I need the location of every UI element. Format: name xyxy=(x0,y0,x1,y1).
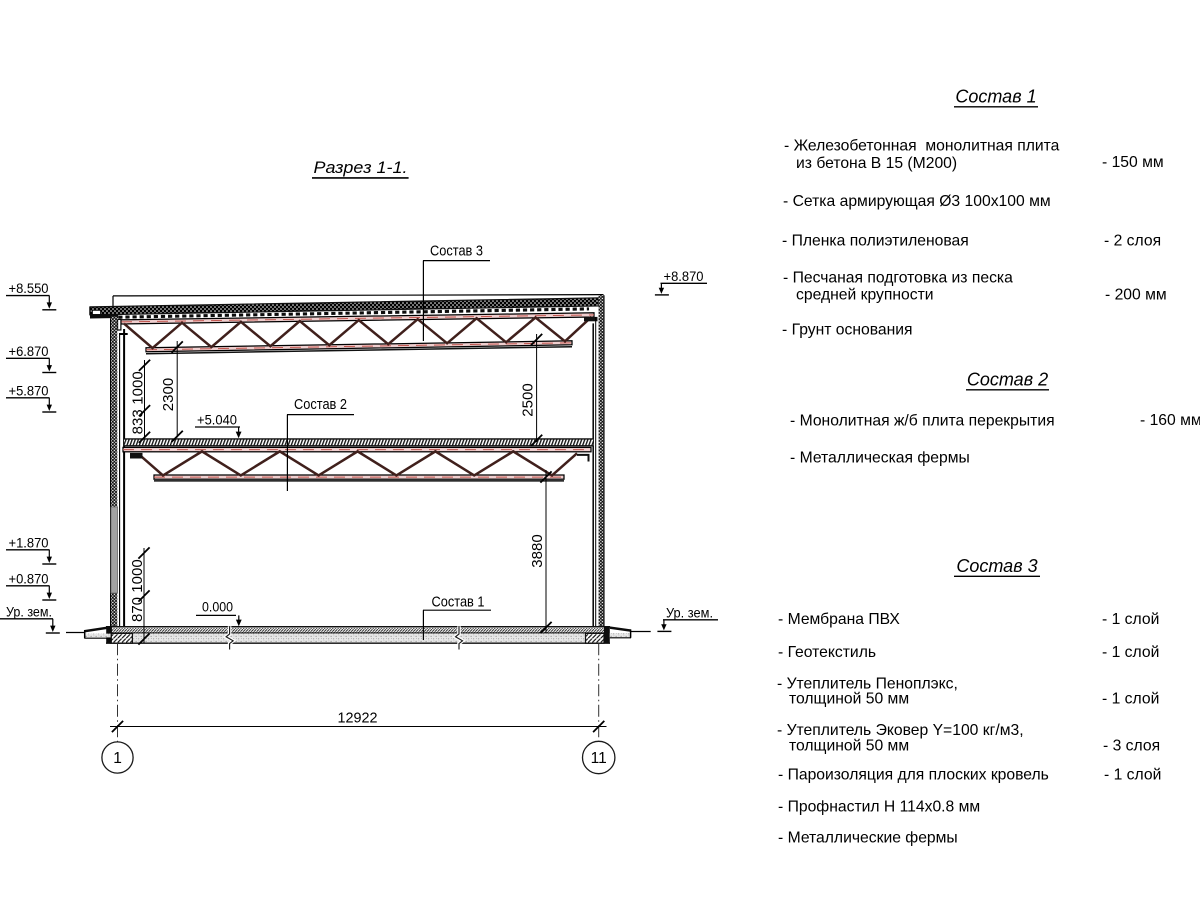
svg-text:870: 870 xyxy=(129,597,146,622)
svg-text:+6.870: +6.870 xyxy=(9,344,49,359)
svg-text:Состав 3: Состав 3 xyxy=(956,556,1037,576)
svg-text:833: 833 xyxy=(130,409,147,434)
svg-text:- Утеплитель Эковер Y=100 кг/м: - Утеплитель Эковер Y=100 кг/м3, xyxy=(777,722,1024,739)
svg-text:- 1 слой: - 1 слой xyxy=(1102,644,1159,661)
svg-text:+1.870: +1.870 xyxy=(9,535,49,550)
svg-text:- Железобетонная монолитная п: - Железобетонная монолитная плита xyxy=(784,138,1060,155)
svg-text:12922: 12922 xyxy=(338,709,378,726)
svg-text:+5.870: +5.870 xyxy=(9,383,49,398)
svg-text:1000: 1000 xyxy=(129,559,146,592)
svg-text:1000: 1000 xyxy=(130,371,147,404)
svg-text:- Сетка армирующая Ø3 100х100: - Сетка армирующая Ø3 100х100 мм xyxy=(783,193,1051,210)
svg-text:Состав 1: Состав 1 xyxy=(432,593,485,610)
svg-text:- 160 мм: - 160 мм xyxy=(1140,412,1200,429)
svg-text:- Мембрана ПВХ: - Мембрана ПВХ xyxy=(778,611,900,628)
svg-text:2500: 2500 xyxy=(520,383,537,416)
svg-text:3880: 3880 xyxy=(529,534,546,567)
svg-text:11: 11 xyxy=(591,750,607,767)
svg-text:+8.550: +8.550 xyxy=(9,281,49,296)
svg-text:- 200 мм: - 200 мм xyxy=(1105,287,1167,304)
svg-text:- 150 мм: - 150 мм xyxy=(1102,154,1164,171)
svg-text:+5.040: +5.040 xyxy=(197,412,237,427)
svg-text:1: 1 xyxy=(113,750,122,767)
svg-text:- Пароизоляция для плоских кро: - Пароизоляция для плоских кровель xyxy=(778,767,1049,784)
svg-text:- 3 слоя: - 3 слоя xyxy=(1103,738,1160,755)
svg-text:- Песчаная подготовка из песка: - Песчаная подготовка из песка xyxy=(783,270,1013,287)
svg-text:2300: 2300 xyxy=(160,378,177,411)
svg-text:Состав 2: Состав 2 xyxy=(294,396,347,413)
svg-text:0.000: 0.000 xyxy=(202,599,233,614)
svg-text:Состав 2: Состав 2 xyxy=(967,370,1048,390)
svg-text:Состав 1: Состав 1 xyxy=(955,87,1036,107)
svg-text:Ур. зем.: Ур. зем. xyxy=(6,604,52,619)
svg-text:- 1 слой: - 1 слой xyxy=(1102,691,1159,708)
svg-text:- Пленка полиэтиленовая: - Пленка полиэтиленовая xyxy=(782,233,969,250)
svg-text:+0.870: +0.870 xyxy=(9,571,49,586)
svg-text:толщиной 50 мм: толщиной 50 мм xyxy=(789,738,909,755)
svg-text:Состав 3: Состав 3 xyxy=(430,242,483,259)
svg-text:- 1 слой: - 1 слой xyxy=(1104,767,1161,784)
svg-text:- Монолитная ж/б плита перекры: - Монолитная ж/б плита перекрытия xyxy=(790,413,1055,430)
svg-text:Разрез 1-1.: Разрез 1-1. xyxy=(314,159,408,177)
svg-text:из бетона В 15 (М200): из бетона В 15 (М200) xyxy=(796,155,957,172)
svg-text:- Грунт основания: - Грунт основания xyxy=(782,322,913,339)
svg-text:- 1 слой: - 1 слой xyxy=(1102,611,1159,628)
svg-text:- 2 слоя: - 2 слоя xyxy=(1104,233,1161,250)
svg-text:- Геотекстиль: - Геотекстиль xyxy=(778,644,876,661)
svg-text:Ур. зем.: Ур. зем. xyxy=(666,605,713,620)
svg-text:средней крупности: средней крупности xyxy=(796,287,934,304)
svg-text:+8.870: +8.870 xyxy=(664,269,704,284)
svg-text:- Профнастил Н 114х0.8 мм: - Профнастил Н 114х0.8 мм xyxy=(778,799,980,816)
svg-text:- Металлическая фермы: - Металлическая фермы xyxy=(790,450,970,467)
svg-text:толщиной 50 мм: толщиной 50 мм xyxy=(789,691,909,708)
svg-text:- Металлические фермы: - Металлические фермы xyxy=(778,830,958,847)
